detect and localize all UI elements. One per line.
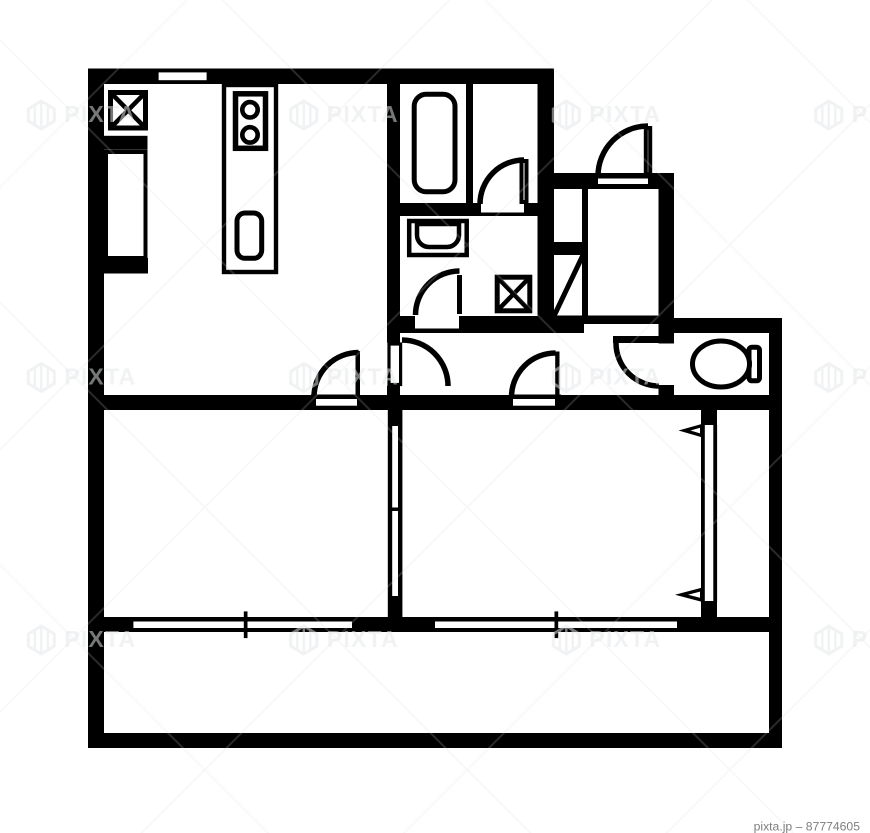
svg-text:PIXTA: PIXTA bbox=[589, 626, 661, 652]
svg-text:PIXTA: PIXTA bbox=[589, 101, 661, 127]
svg-text:PIXTA: PIXTA bbox=[589, 364, 661, 390]
svg-text:PIXTA: PIXTA bbox=[64, 626, 136, 652]
svg-text:PIXTA: PIXTA bbox=[852, 364, 870, 390]
svg-text:PIXTA: PIXTA bbox=[327, 364, 399, 390]
svg-text:PIXTA: PIXTA bbox=[64, 364, 136, 390]
svg-text:PIXTA: PIXTA bbox=[327, 101, 399, 127]
svg-text:PIXTA: PIXTA bbox=[852, 101, 870, 127]
svg-text:PIXTA: PIXTA bbox=[852, 626, 870, 652]
svg-text:pixta.jp – 87774605: pixta.jp – 87774605 bbox=[754, 820, 861, 833]
svg-text:PIXTA: PIXTA bbox=[327, 626, 399, 652]
svg-text:PIXTA: PIXTA bbox=[64, 101, 136, 127]
